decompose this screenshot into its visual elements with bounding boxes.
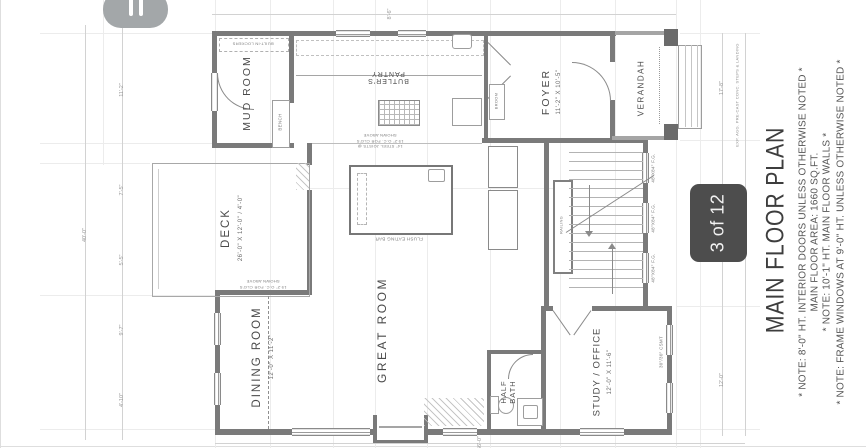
stair-tread bbox=[569, 170, 643, 171]
room-dim-study: 12'-0" X 11'-6" bbox=[607, 350, 613, 395]
dim-label: 7'-5" bbox=[119, 185, 125, 196]
wall bbox=[487, 350, 491, 433]
wall bbox=[592, 306, 672, 311]
stair-tread bbox=[569, 224, 643, 225]
dim-label: 17'-8" bbox=[719, 81, 725, 95]
window bbox=[443, 428, 477, 436]
window bbox=[214, 313, 221, 345]
joists-note: 14" STEEL JOISTS @ 19.2" O.C. FOR CLG'S … bbox=[235, 279, 291, 295]
page-indicator-badge: 3 of 12 bbox=[690, 184, 747, 262]
window-label: 30"/30" CSMT bbox=[659, 336, 664, 368]
extension-line bbox=[40, 33, 212, 34]
room-label-deck: DECK bbox=[220, 208, 232, 248]
plan-note: * NOTE: FRAME WINDOWS AT 9'-0" HT. UNLES… bbox=[836, 59, 847, 404]
step-line bbox=[697, 45, 698, 127]
stair-tread bbox=[569, 233, 643, 234]
french-door-leaf bbox=[553, 310, 571, 335]
extension-line bbox=[40, 143, 212, 144]
room-label-great-room: GREAT ROOM bbox=[375, 277, 389, 383]
window bbox=[336, 30, 370, 37]
built-in-lockers-label: BUILT-IN LOCKERS bbox=[232, 42, 273, 47]
dim-label: 11'-2" bbox=[119, 83, 125, 97]
room-dim-dining-room: 12'-0" X 11'-2" bbox=[269, 335, 275, 380]
french-door-leaf bbox=[573, 310, 591, 335]
door-opening bbox=[211, 73, 218, 111]
verandah-screen-line bbox=[659, 47, 660, 124]
stair-tread bbox=[569, 161, 643, 162]
deck-inner-line bbox=[158, 169, 159, 289]
verandah-post bbox=[664, 124, 678, 140]
wall bbox=[610, 100, 615, 140]
railing-label: RAILING bbox=[559, 216, 564, 234]
island-overhang-dashed bbox=[357, 173, 367, 225]
room-label-mud-room: MUD ROOM bbox=[241, 55, 253, 131]
wall bbox=[289, 31, 294, 103]
door-arc bbox=[508, 354, 533, 379]
wall bbox=[544, 143, 549, 306]
plan-title: MAIN FLOOR PLAN bbox=[762, 127, 791, 333]
window bbox=[214, 373, 221, 405]
stair-tread bbox=[569, 269, 643, 270]
extension-line bbox=[676, 0, 677, 448]
extension-line bbox=[676, 306, 760, 307]
extension-line bbox=[40, 429, 215, 430]
steps bbox=[678, 45, 702, 129]
pause-bar-icon bbox=[129, 0, 133, 16]
window bbox=[580, 428, 624, 436]
wall bbox=[487, 350, 545, 354]
bench-label: BENCH bbox=[278, 113, 283, 130]
threshold-hatch bbox=[296, 163, 309, 190]
pause-bar-icon bbox=[139, 0, 143, 16]
sink bbox=[452, 34, 472, 49]
range-cooktop bbox=[378, 100, 420, 126]
dimension-line bbox=[212, 14, 676, 15]
wall bbox=[307, 143, 312, 165]
room-dim-foyer: 11'-2" X 10'-5" bbox=[556, 70, 562, 115]
window bbox=[642, 203, 649, 233]
window bbox=[666, 325, 673, 355]
wall bbox=[541, 306, 553, 311]
floor-plan-viewer: 40'-0" 11'-2" 7'-5" 5'-5" 9'-7" 4'-10" 8… bbox=[0, 0, 866, 448]
dim-label: 56'-0" bbox=[477, 436, 483, 448]
photo-edge-left bbox=[0, 0, 1, 448]
dim-label-overall: 40'-0" bbox=[82, 228, 88, 242]
plan-note: MAIN FLOOR AREA: 1660 SQ.FT. bbox=[810, 153, 821, 312]
step-line bbox=[685, 45, 686, 127]
extension-line bbox=[103, 0, 104, 165]
room-label-butlers-pantry: BUTLER'S PANTRY bbox=[364, 70, 412, 84]
vanity-sink bbox=[523, 405, 538, 419]
extension-line bbox=[40, 163, 150, 164]
extension-line bbox=[676, 429, 760, 430]
stair-tread bbox=[569, 197, 643, 198]
door-arc bbox=[572, 62, 611, 101]
extension-line bbox=[680, 33, 760, 34]
floor-transition-line bbox=[312, 143, 482, 144]
page-indicator-text: 3 of 12 bbox=[708, 194, 729, 253]
window-label: 48"X84" F.G. bbox=[651, 203, 656, 232]
room-label-verandah: VERANDAH bbox=[637, 60, 646, 116]
window bbox=[666, 383, 673, 413]
window-label: 48"X84" F.G. bbox=[651, 153, 656, 182]
bay-window-wall bbox=[373, 440, 428, 443]
closet-door-leaf bbox=[488, 42, 511, 65]
stair-tread bbox=[569, 152, 643, 153]
dim-label: 9'-7" bbox=[119, 325, 125, 336]
stair-tread bbox=[569, 251, 643, 252]
room-label-half-bath: HALF BATH bbox=[499, 377, 517, 407]
room-label-study: STUDY / OFFICE bbox=[592, 328, 603, 417]
bay-window-wall bbox=[373, 415, 377, 443]
verandah-post bbox=[664, 29, 678, 46]
wall bbox=[484, 31, 488, 141]
island-sink bbox=[428, 169, 445, 182]
fridge bbox=[452, 98, 482, 126]
stair-tread bbox=[569, 215, 643, 216]
camera-pill[interactable] bbox=[103, 0, 168, 28]
extension-line bbox=[680, 140, 760, 141]
dim-label: 8'-6" bbox=[387, 9, 393, 20]
stair-treads bbox=[569, 152, 643, 298]
photo-edge-bottom bbox=[0, 446, 866, 447]
bay-window-glass bbox=[379, 426, 422, 428]
dim-label: 12'-0" bbox=[719, 373, 725, 387]
window bbox=[642, 253, 649, 283]
sliding-door bbox=[292, 428, 370, 436]
wall bbox=[610, 31, 615, 62]
stair-arrow-up bbox=[608, 243, 616, 249]
stair-arrow-down bbox=[585, 231, 593, 237]
broom-label: BROOM bbox=[494, 93, 499, 110]
plan-note: * NOTE: 10'-1" HT. MAIN FLOOR WALLS * bbox=[822, 133, 833, 332]
dim-label: 4'-10" bbox=[119, 393, 125, 407]
window bbox=[398, 30, 426, 37]
room-label-dining-room: DINING ROOM bbox=[251, 306, 263, 407]
plan-note: * NOTE: 8'-0" HT. INTERIOR DOORS UNLESS … bbox=[798, 67, 809, 397]
stair-tread bbox=[569, 278, 643, 279]
stair-tread bbox=[569, 260, 643, 261]
step-line bbox=[691, 45, 692, 127]
closet bbox=[488, 190, 518, 250]
stair-tread bbox=[569, 287, 643, 288]
steps-note: EXP. AGG. PRE-CAST CONC. STEPS & LANDING bbox=[735, 43, 740, 147]
room-dim-deck: 26'-0" X 12'-0" / 4'-0" bbox=[238, 195, 244, 261]
extension-line bbox=[333, 0, 334, 448]
window-label: 48"X84" F.G. bbox=[651, 253, 656, 282]
room-label-foyer: FOYER bbox=[540, 69, 552, 115]
wall bbox=[215, 290, 220, 435]
stair-tread bbox=[569, 242, 643, 243]
flush-eating-bar-label: FLUSH EATING BAR bbox=[375, 237, 423, 242]
closet bbox=[488, 146, 518, 188]
joists-note: 14" STEEL JOISTS @ 19.2" O.C. FOR CLG'S … bbox=[352, 133, 408, 149]
dim-label: 5'-5" bbox=[119, 255, 125, 266]
stair-arrow-line bbox=[589, 185, 590, 233]
stair-tread bbox=[569, 179, 643, 180]
stair-arrow-line bbox=[612, 249, 613, 294]
tile-hatch bbox=[424, 398, 484, 426]
